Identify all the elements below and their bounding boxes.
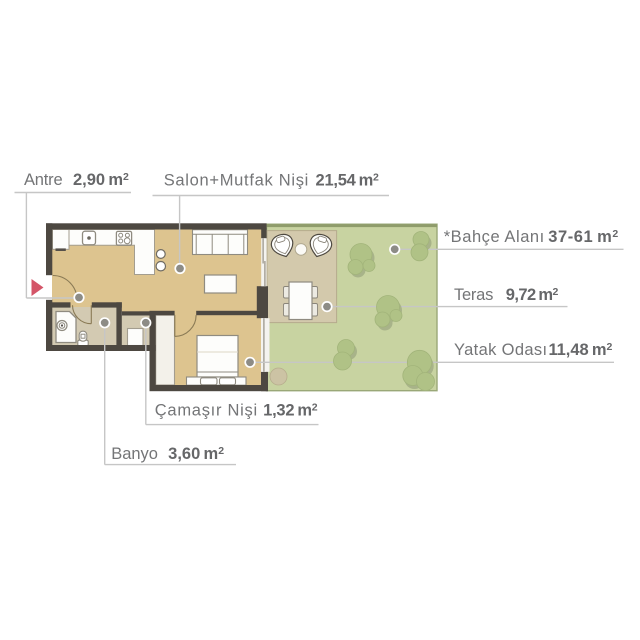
svg-text:Teras9,72 m2: Teras9,72 m2 [454, 286, 559, 304]
svg-text:*Bahçe Alanı37-61 m2: *Bahçe Alanı37-61 m2 [444, 228, 619, 246]
svg-text:Banyo3,60 m2: Banyo3,60 m2 [111, 445, 224, 463]
svg-text:Salon+Mutfak Nişi21,54 m2: Salon+Mutfak Nişi21,54 m2 [164, 172, 379, 190]
svg-text:Antre2,90 m2: Antre2,90 m2 [24, 171, 129, 189]
svg-text:Yatak Odası11,48 m2: Yatak Odası11,48 m2 [454, 341, 612, 359]
svg-text:Çamaşır Nişi1,32 m2: Çamaşır Nişi1,32 m2 [155, 402, 318, 420]
